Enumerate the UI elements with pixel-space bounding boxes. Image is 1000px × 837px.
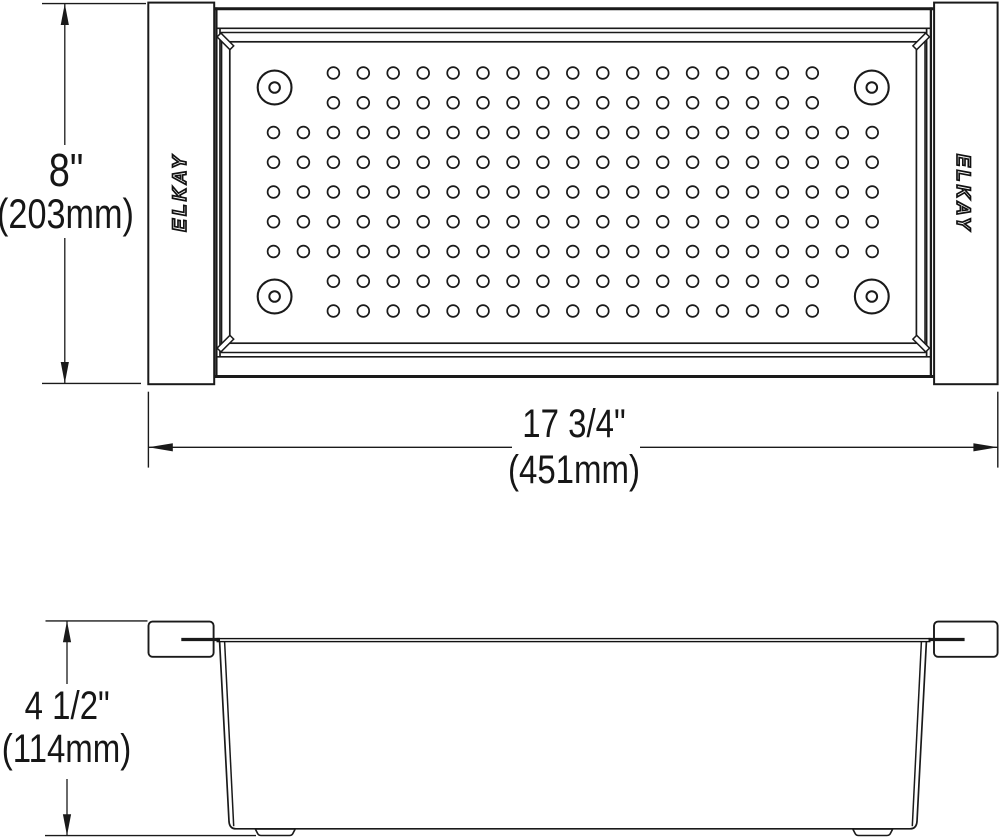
svg-text:ELKAY: ELKAY [952,154,973,233]
svg-text:(451mm): (451mm) [508,447,640,492]
svg-text:17 3/4": 17 3/4" [522,401,625,446]
svg-text:(114mm): (114mm) [2,726,132,771]
svg-text:(203mm): (203mm) [0,192,134,238]
svg-text:4 1/2": 4 1/2" [25,683,110,728]
svg-text:8": 8" [49,145,84,196]
svg-text:ELKAY: ELKAY [170,153,191,232]
